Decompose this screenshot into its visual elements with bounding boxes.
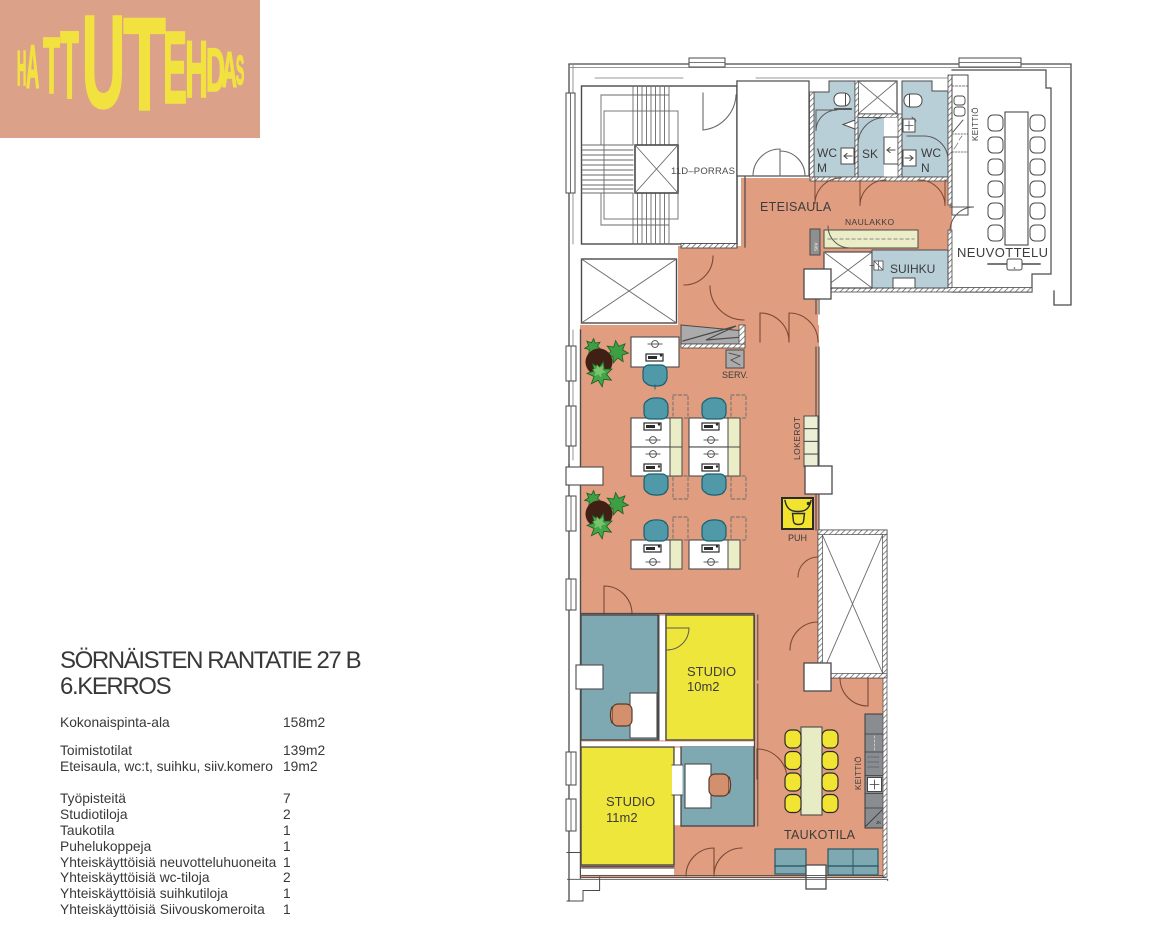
svg-text:H: H <box>17 41 27 96</box>
svg-text:1: 1 <box>283 823 291 838</box>
svg-text:Taukotila: Taukotila <box>60 823 115 838</box>
svg-text:E: E <box>163 11 187 126</box>
svg-text:11D–PORRAS: 11D–PORRAS <box>671 166 735 177</box>
svg-text:T: T <box>60 12 79 120</box>
svg-text:Yhteiskäyttöisiä neuvotteluhuo: Yhteiskäyttöisiä neuvotteluhuoneita <box>60 855 277 870</box>
svg-text:10m2: 10m2 <box>687 679 720 694</box>
svg-text:M: M <box>817 161 827 175</box>
svg-text:1: 1 <box>283 855 291 870</box>
svg-text:Eteisaula, wc:t, suihku, siiv.: Eteisaula, wc:t, suihku, siiv.komero <box>60 759 273 774</box>
svg-text:SÖRNÄISTEN RANTATIE 27 B: SÖRNÄISTEN RANTATIE 27 B <box>60 647 361 674</box>
svg-text:KEITTIÖ: KEITTIÖ <box>854 756 863 790</box>
svg-text:U: U <box>82 0 126 136</box>
svg-text:LOKEROT: LOKEROT <box>792 417 802 460</box>
svg-text:1: 1 <box>283 886 291 901</box>
svg-text:1: 1 <box>283 839 291 854</box>
svg-text:Puhelukoppeja: Puhelukoppeja <box>60 839 152 854</box>
svg-text:Studiotiloja: Studiotiloja <box>60 807 128 822</box>
svg-text:139m2: 139m2 <box>283 743 325 758</box>
svg-text:STUDIO: STUDIO <box>687 664 736 679</box>
svg-text:6.KERROS: 6.KERROS <box>60 673 171 700</box>
svg-text:1: 1 <box>283 902 291 917</box>
svg-text:SERV.: SERV. <box>722 370 748 380</box>
svg-text:NEUVOTTELU: NEUVOTTELU <box>957 245 1048 260</box>
svg-text:158m2: 158m2 <box>283 715 325 730</box>
svg-text:SK: SK <box>862 147 878 161</box>
svg-text:WC: WC <box>817 146 837 160</box>
svg-text:11m2: 11m2 <box>606 810 638 825</box>
svg-text:SIIV: SIIV <box>814 242 819 251</box>
svg-text:Toimistotilat: Toimistotilat <box>60 743 132 758</box>
svg-text:ETEISAULA: ETEISAULA <box>760 200 832 214</box>
svg-text:S: S <box>236 49 244 94</box>
svg-text:STUDIO: STUDIO <box>606 794 655 809</box>
svg-text:Kokonaispinta-ala: Kokonaispinta-ala <box>60 715 170 730</box>
svg-text:T: T <box>43 21 60 110</box>
svg-text:H: H <box>185 25 208 116</box>
svg-text:T: T <box>123 0 166 139</box>
svg-text:NAULAKKO: NAULAKKO <box>845 217 895 227</box>
svg-text:Yhteiskäyttöisiä wc-tiloja: Yhteiskäyttöisiä wc-tiloja <box>60 870 210 885</box>
svg-text:Yhteiskäyttöisiä suihkutiloja: Yhteiskäyttöisiä suihkutiloja <box>60 886 228 901</box>
svg-text:SUIHKU: SUIHKU <box>890 262 935 276</box>
svg-text:Yhteiskäyttöisiä Siivouskomero: Yhteiskäyttöisiä Siivouskomeroita <box>60 902 265 917</box>
svg-text:2: 2 <box>283 807 291 822</box>
svg-text:WC: WC <box>921 146 941 160</box>
svg-text:2: 2 <box>283 870 291 885</box>
svg-text:Työpisteitä: Työpisteitä <box>60 791 126 806</box>
svg-text:JK: JK <box>876 820 881 825</box>
svg-text:A: A <box>222 43 237 99</box>
svg-text:19m2: 19m2 <box>283 759 318 774</box>
svg-text:A: A <box>26 32 39 101</box>
svg-text:TAUKOTILA: TAUKOTILA <box>784 828 856 842</box>
svg-text:PUH: PUH <box>788 533 807 543</box>
svg-text:7: 7 <box>283 791 291 806</box>
svg-text:KEITTIÖ: KEITTIÖ <box>971 107 980 141</box>
svg-text:N: N <box>921 161 930 175</box>
